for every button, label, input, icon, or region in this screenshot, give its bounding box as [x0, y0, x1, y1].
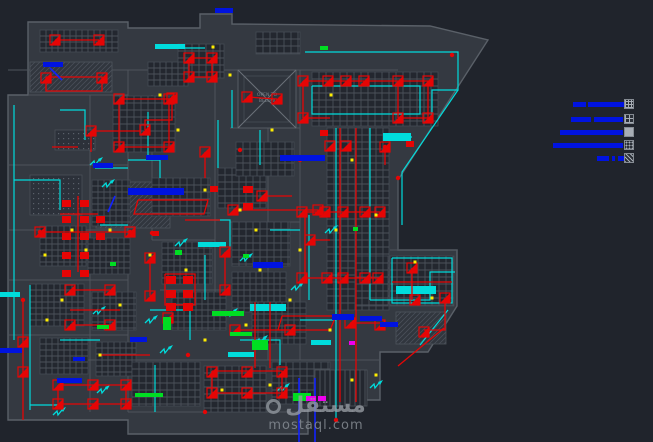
legend-bar	[571, 117, 591, 122]
legend-bar	[560, 130, 623, 135]
legend-bar	[573, 102, 586, 107]
legend-bar	[597, 156, 609, 161]
cad-viewport: OPEN TOBELOW مستقل mostaql.com	[0, 0, 653, 442]
legend-bar	[612, 156, 615, 161]
floor-plan-drawing: OPEN TOBELOW	[0, 0, 653, 442]
legend-bar	[594, 117, 623, 122]
legend-swatch-coarse-grid	[624, 114, 634, 124]
legend-bar	[553, 143, 623, 148]
legend-swatch-solid	[624, 127, 634, 137]
legend-swatch-fine-grid	[624, 99, 634, 109]
legend-swatch-diag	[624, 153, 634, 163]
legend-bar	[588, 102, 624, 107]
legend-swatch-speckle	[624, 140, 634, 150]
